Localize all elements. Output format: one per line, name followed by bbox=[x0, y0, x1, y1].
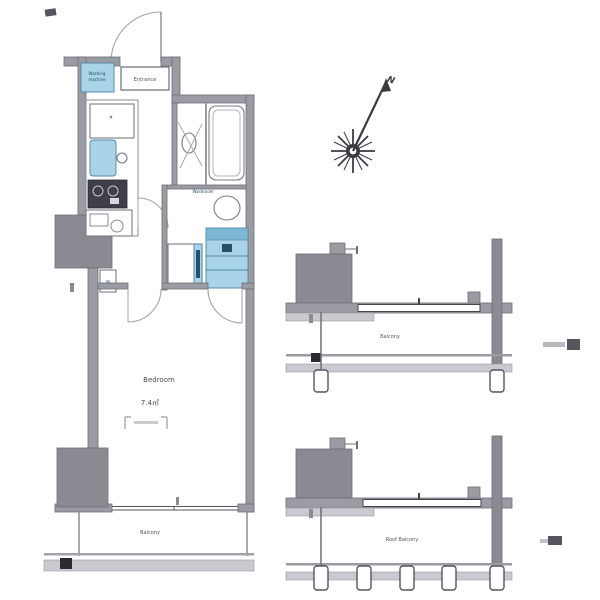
furniture-outline bbox=[125, 417, 167, 429]
pillar-tick-mark bbox=[70, 283, 74, 292]
floor-plan-drawing: Washing machine Entrance bbox=[0, 0, 600, 600]
section-balcony: Balcony bbox=[286, 239, 512, 392]
main-balcony: Balcony bbox=[44, 512, 254, 571]
section2-window bbox=[363, 500, 481, 507]
print-artifact-mark bbox=[45, 8, 57, 16]
pillar-lower-left bbox=[57, 448, 108, 507]
washroom: Washroom bbox=[162, 185, 248, 290]
entrance-area: Entrance bbox=[121, 67, 169, 90]
margin-mark bbox=[543, 342, 565, 347]
washing-machine-space: Washing machine bbox=[81, 63, 114, 92]
storage-cabinet bbox=[168, 244, 202, 284]
refrigerator-space bbox=[90, 104, 134, 138]
main-balcony-label: Balcony bbox=[140, 530, 160, 536]
bedroom-area-label: 7.4㎡ bbox=[141, 399, 159, 407]
bedroom-window bbox=[112, 497, 238, 510]
refrigerator-mark bbox=[110, 116, 113, 119]
unit-floor-plan: Washing machine Entrance bbox=[44, 12, 254, 571]
entrance-label: Entrance bbox=[134, 77, 156, 83]
section2-post bbox=[400, 566, 414, 590]
kitchen-counter bbox=[86, 100, 138, 236]
balcony-drain-mark bbox=[60, 558, 72, 569]
window-lock-mark bbox=[176, 497, 179, 505]
vanity-unit bbox=[206, 228, 248, 288]
section1-balcony-label: Balcony bbox=[380, 334, 400, 340]
entrance-door-swing bbox=[111, 12, 161, 62]
north-arrow bbox=[353, 84, 385, 151]
section1-window-tick bbox=[418, 298, 420, 304]
washroom-label: Washroom bbox=[192, 189, 213, 194]
section2-post bbox=[490, 566, 504, 590]
margin-mark bbox=[567, 339, 580, 350]
toilet bbox=[214, 196, 240, 220]
section2-post bbox=[357, 566, 371, 590]
section2-post bbox=[314, 566, 328, 590]
bathtub bbox=[209, 106, 244, 180]
section2-window-tick bbox=[418, 493, 420, 499]
section1-right-column bbox=[492, 239, 502, 379]
washer-label-line2: machine bbox=[88, 77, 106, 82]
section1-drain-mark bbox=[311, 353, 321, 362]
bathroom bbox=[167, 103, 246, 189]
section1-window bbox=[358, 305, 480, 312]
floor-plan-page: Washing machine Entrance bbox=[0, 0, 600, 600]
bedroom-partition-wall bbox=[98, 283, 254, 323]
bedroom-label: Bedroom bbox=[143, 376, 175, 384]
kitchen-faucet bbox=[117, 153, 127, 163]
margin-mark bbox=[540, 539, 548, 543]
compass: N bbox=[331, 75, 396, 173]
section-roof-balcony: Roof Balcony bbox=[286, 436, 512, 590]
kitchen-lower-cabinet bbox=[86, 210, 132, 236]
stove bbox=[88, 180, 127, 208]
section1-post bbox=[490, 370, 504, 392]
washer-label-line1: Washing bbox=[89, 71, 106, 76]
section1-post bbox=[314, 370, 328, 392]
kitchen-sink bbox=[90, 140, 116, 176]
margin-mark bbox=[548, 536, 562, 545]
section2-roof-balcony-label: Roof Balcony bbox=[386, 537, 419, 543]
bedroom: Bedroom 7.4㎡ bbox=[125, 376, 175, 429]
margin-annotations bbox=[540, 339, 580, 545]
section2-post bbox=[442, 566, 456, 590]
